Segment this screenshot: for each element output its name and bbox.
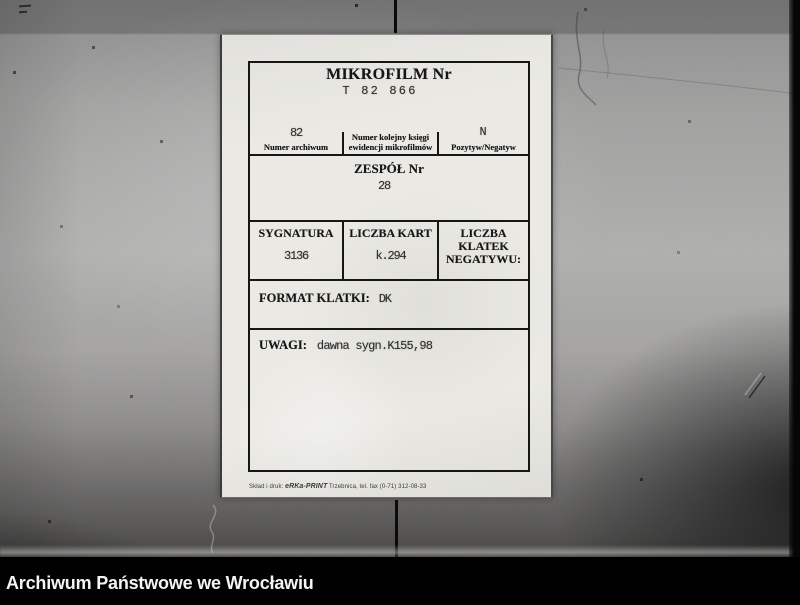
film-edge-light-streak bbox=[0, 545, 800, 557]
frame-format-value: DK bbox=[379, 292, 391, 306]
film-scratch-top-center bbox=[394, 0, 397, 33]
archive-name: Archiwum Państwowe we Wrocławiu bbox=[6, 573, 314, 594]
sheet-count-value: k.294 bbox=[375, 249, 405, 263]
frame-format-label: FORMAT KLATKI: bbox=[259, 291, 370, 305]
fonds-number-label: ZESPÓŁ Nr bbox=[250, 161, 528, 177]
register-book-label: Numer kolejny księgi ewidencji mikrofilm… bbox=[342, 132, 437, 154]
signature-cell: SYGNATURA 3136 bbox=[250, 222, 342, 279]
card-header-row: MIKROFILM Nr T 82 866 82 N Numer archiwu… bbox=[250, 63, 528, 154]
details-row: SYGNATURA 3136 LICZBA KART k.294 LICZBA … bbox=[250, 220, 528, 279]
microfilm-index-card: MIKROFILM Nr T 82 866 82 N Numer archiwu… bbox=[220, 34, 553, 498]
frame-format-row: FORMAT KLATKI:DK bbox=[250, 279, 528, 328]
dust-specks bbox=[0, 0, 1, 1]
signature-label: SYGNATURA bbox=[258, 227, 333, 240]
fonds-number-value: 28 bbox=[245, 179, 523, 193]
positive-negative-label: Pozytyw/Negatyw bbox=[437, 132, 528, 154]
microfilm-number-value: T 82 866 bbox=[241, 84, 519, 98]
remarks-label: UWAGI: bbox=[259, 338, 307, 352]
signature-value: 3136 bbox=[284, 249, 308, 263]
archive-number-label: Numer archiwum bbox=[250, 132, 342, 154]
card-title: MIKROFILM Nr bbox=[250, 66, 528, 84]
remarks-row: UWAGI:dawna sygn.K155,98 bbox=[250, 328, 528, 470]
film-mark bbox=[19, 11, 27, 14]
caption-bar: Archiwum Państwowe we Wrocławiu bbox=[0, 557, 800, 605]
negative-frame-count-cell: LICZBA KLATEK NEGATYWU: bbox=[437, 222, 528, 279]
scanned-microfilm-frame: MIKROFILM Nr T 82 866 82 N Numer archiwu… bbox=[0, 0, 800, 605]
printer-note-details: Trzebnica, tel. fax (0-71) 312-08-33 bbox=[327, 484, 426, 490]
printer-note: Skład i druk: eRKa-PRINT Trzebnica, tel.… bbox=[249, 483, 426, 490]
printer-note-prefix: Skład i druk: bbox=[249, 484, 285, 490]
film-mark bbox=[19, 5, 31, 8]
fonds-number-row: ZESPÓŁ Nr 28 bbox=[250, 154, 528, 220]
sheet-count-label: LICZBA KART bbox=[349, 227, 432, 240]
sheet-count-cell: LICZBA KART k.294 bbox=[342, 222, 437, 279]
register-book-label-line2: ewidencji mikrofilmów bbox=[349, 143, 433, 153]
printer-note-brand: eRKa-PRINT bbox=[285, 483, 327, 490]
remarks-value: dawna sygn.K155,98 bbox=[317, 339, 432, 353]
header-label-strip: Numer archiwum Numer kolejny księgi ewid… bbox=[250, 132, 528, 154]
negative-frame-count-label-line1: LICZBA KLATEK bbox=[439, 227, 528, 253]
negative-frame-count-label-line2: NEGATYWU: bbox=[446, 253, 521, 266]
card-table: MIKROFILM Nr T 82 866 82 N Numer archiwu… bbox=[248, 61, 530, 472]
film-edge-right bbox=[789, 0, 800, 605]
